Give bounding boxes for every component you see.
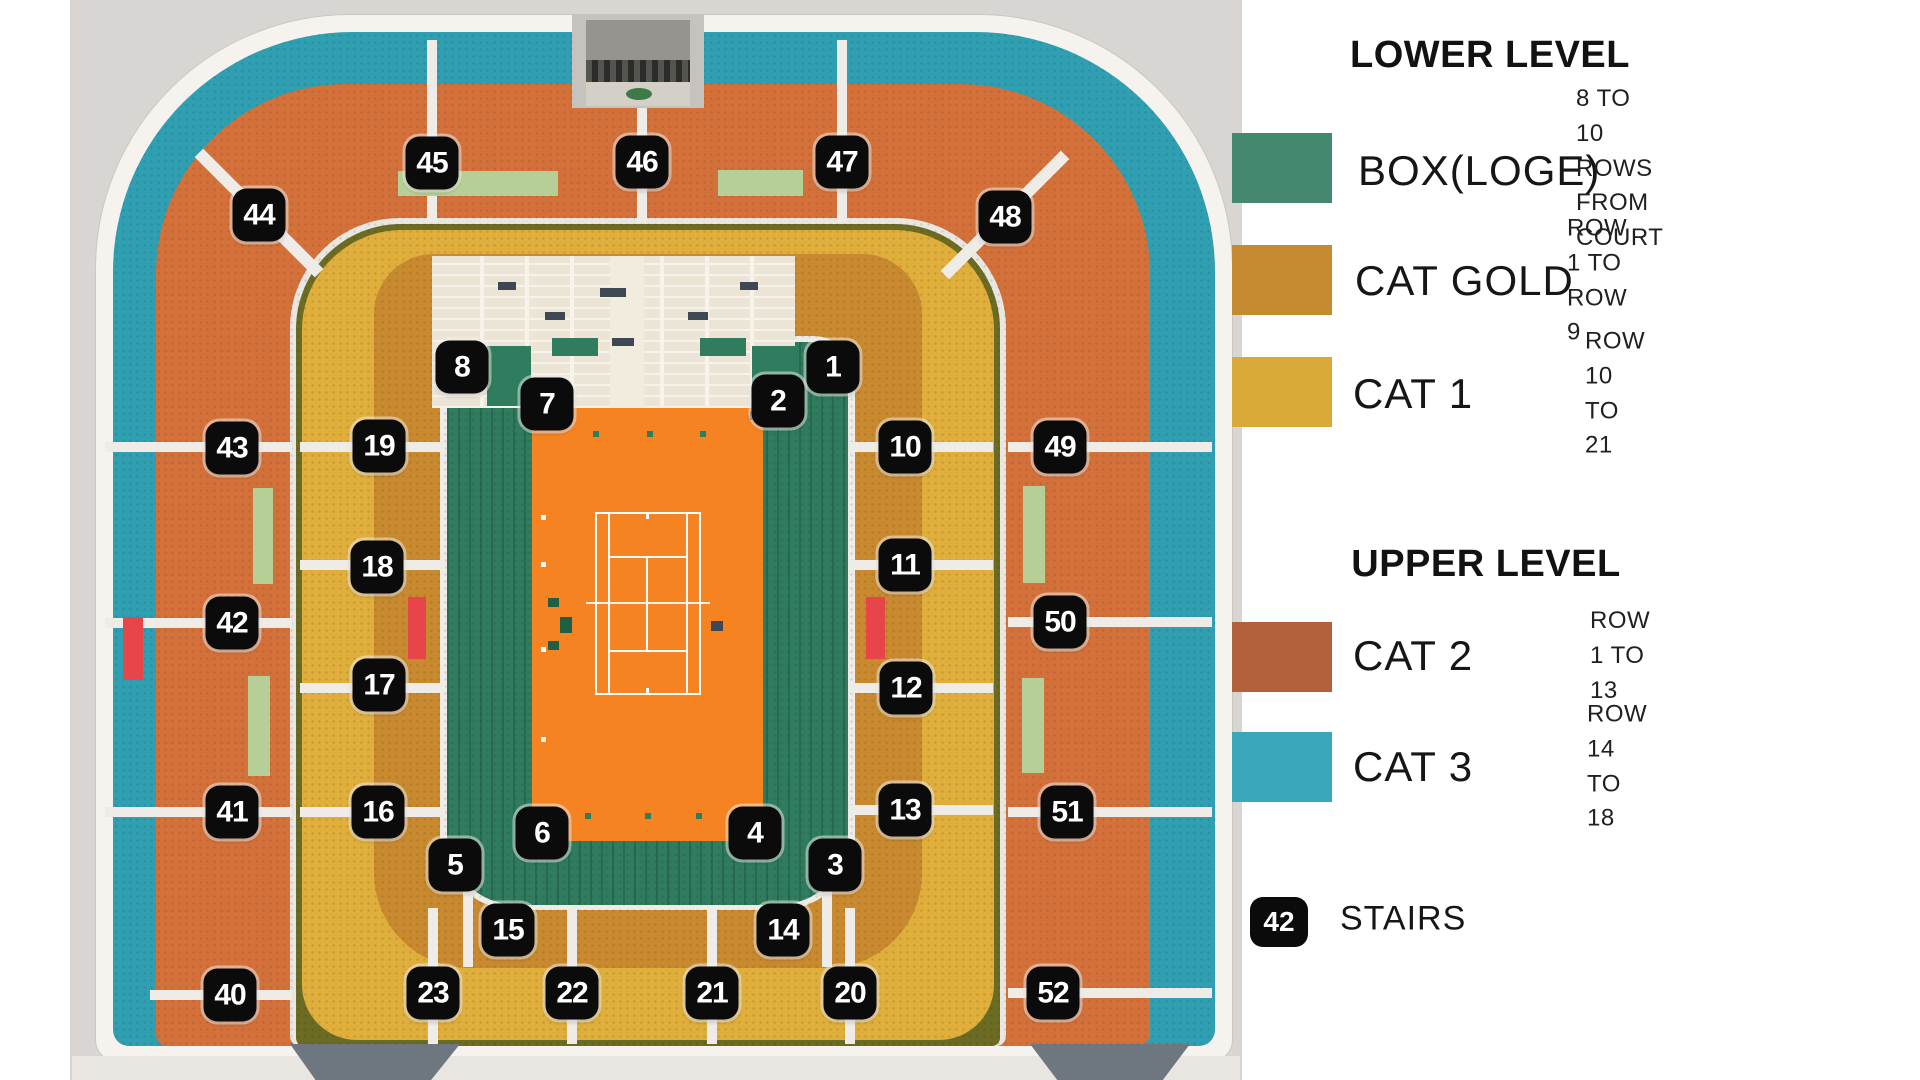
section-badge-46: 46 — [616, 136, 669, 189]
section-badge-7: 7 — [521, 378, 574, 431]
section-badge-5: 5 — [429, 839, 482, 892]
section-badge-1: 1 — [807, 341, 860, 394]
section-badge-6: 6 — [516, 807, 569, 860]
cat3-label: CAT 3 — [1353, 743, 1473, 791]
scoreboard-housing — [586, 20, 690, 60]
section-badge-42: 42 — [206, 597, 259, 650]
section-badge-49: 49 — [1034, 421, 1087, 474]
section-badge-17: 17 — [353, 659, 406, 712]
cat1-swatch — [1232, 357, 1332, 427]
cat-gold-swatch — [1232, 245, 1332, 315]
section-badge-11: 11 — [879, 539, 932, 592]
section-badge-44: 44 — [233, 189, 286, 242]
roland-garros-logo — [626, 88, 652, 100]
cat3-swatch — [1232, 732, 1332, 802]
section-badge-50: 50 — [1034, 596, 1087, 649]
cat2-swatch — [1232, 622, 1332, 692]
section-badge-45: 45 — [406, 137, 459, 190]
tribune-center-aisle — [610, 256, 644, 408]
section-badge-52: 52 — [1027, 967, 1080, 1020]
cat1-label: CAT 1 — [1353, 370, 1473, 418]
player-bench — [548, 598, 559, 607]
section-badge-20: 20 — [824, 967, 877, 1020]
seating-map-page: 4546474448872143191842174116401049115012… — [0, 0, 1920, 1080]
section-badge-4: 4 — [729, 807, 782, 860]
cat-gold-label: CAT GOLD — [1355, 257, 1574, 305]
section-badge-41: 41 — [206, 786, 259, 839]
entrance-tunnel-right — [1030, 1044, 1190, 1080]
section-badge-19: 19 — [353, 420, 406, 473]
section-badge-48: 48 — [979, 191, 1032, 244]
box-loge-label: BOX(LOGE) — [1358, 147, 1600, 195]
section-badge-21: 21 — [686, 967, 739, 1020]
cat2-label: CAT 2 — [1353, 632, 1473, 680]
stairs-badge-sample: 42 — [1250, 897, 1308, 947]
section-badge-10: 10 — [879, 421, 932, 474]
camera-well — [711, 621, 723, 631]
umpire-chair — [560, 617, 572, 633]
cat2-note: ROW 1 TO 13 — [1590, 604, 1650, 708]
section-badge-3: 3 — [809, 839, 862, 892]
box-loge-swatch — [1232, 133, 1332, 203]
stairs-label: STAIRS — [1340, 900, 1466, 939]
section-badge-12: 12 — [880, 662, 933, 715]
entrance-tunnel-left — [290, 1044, 460, 1080]
scoreboard-screen — [586, 60, 690, 82]
player-bench — [548, 641, 559, 650]
section-badge-16: 16 — [352, 786, 405, 839]
cat3-note: ROW 14 TO 18 — [1587, 697, 1647, 836]
section-badge-15: 15 — [482, 904, 535, 957]
section-badge-47: 47 — [816, 136, 869, 189]
section-badge-8: 8 — [436, 341, 489, 394]
cat1-note: ROW 10 TO 21 — [1585, 324, 1645, 463]
section-badge-18: 18 — [351, 541, 404, 594]
section-badge-14: 14 — [757, 904, 810, 957]
lower-level-heading: LOWER LEVEL — [1350, 34, 1630, 77]
section-badge-43: 43 — [206, 422, 259, 475]
section-badge-22: 22 — [546, 967, 599, 1020]
upper-level-heading: UPPER LEVEL — [1351, 543, 1620, 586]
section-badge-51: 51 — [1041, 786, 1094, 839]
section-badge-40: 40 — [204, 969, 257, 1022]
section-badge-13: 13 — [879, 784, 932, 837]
section-badge-2: 2 — [752, 375, 805, 428]
section-badge-23: 23 — [407, 967, 460, 1020]
